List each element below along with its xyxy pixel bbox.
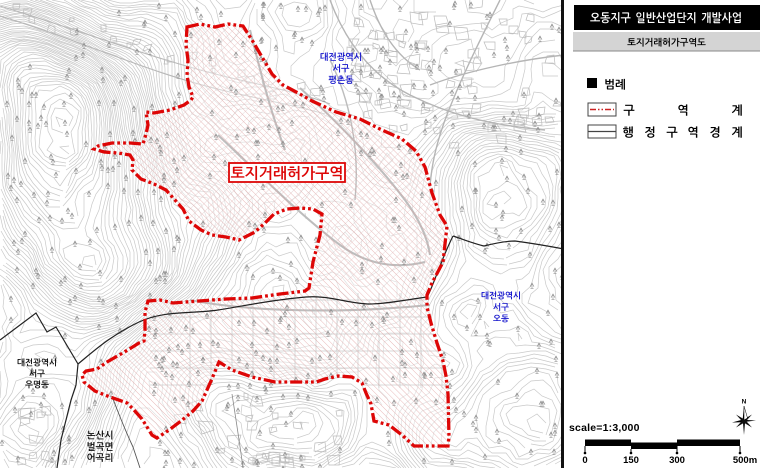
svg-text:N: N <box>742 399 747 406</box>
svg-text:scale=1:3,000: scale=1:3,000 <box>569 422 640 434</box>
svg-text:500m: 500m <box>733 455 757 466</box>
svg-text:300: 300 <box>669 455 685 466</box>
svg-text:150: 150 <box>623 455 639 466</box>
svg-text:0: 0 <box>582 455 587 466</box>
